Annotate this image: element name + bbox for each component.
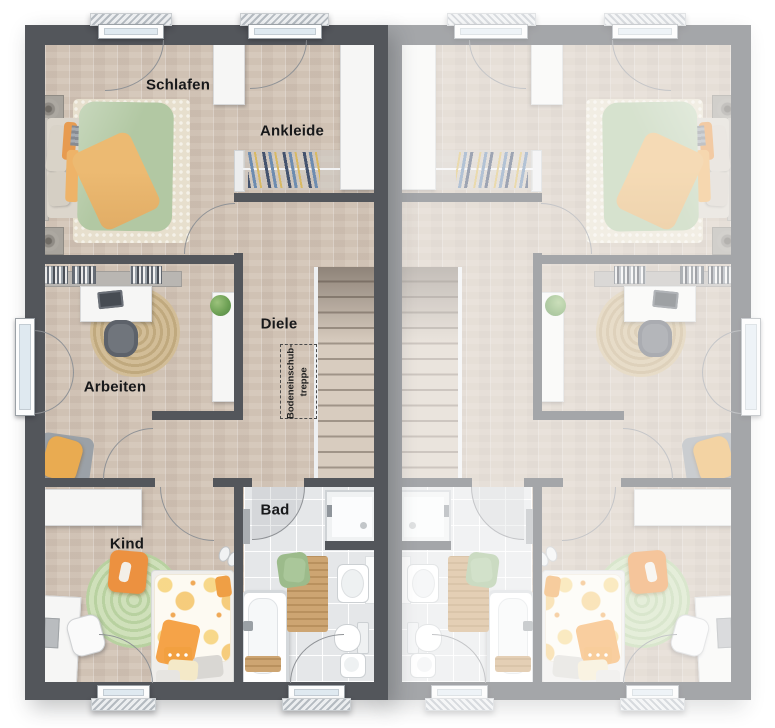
room-label-bad: Bad	[261, 502, 290, 519]
books	[680, 266, 704, 284]
window-glass	[437, 689, 482, 696]
shower-faucet	[444, 505, 449, 517]
wall-exterior-top	[388, 25, 751, 45]
window-glass	[745, 324, 757, 410]
wall-shower-stub	[402, 541, 451, 550]
unit-left	[388, 0, 775, 728]
window-glass	[618, 28, 672, 35]
unit-left: Schlafen Ankleide Diele Arbeiten Bad Kin…	[0, 0, 388, 728]
room-label-diele: Diele	[261, 316, 298, 333]
wall-arbeiten-bottom	[533, 411, 624, 420]
room-label-schlafen: Schlafen	[146, 77, 210, 94]
shower	[397, 490, 451, 544]
office-chair	[638, 320, 672, 357]
roof-window-exterior	[425, 698, 494, 711]
attic-hatch-annotation: Bodeneinschub- treppe	[280, 344, 317, 419]
potted-plant	[545, 295, 566, 316]
attic-hatch-line1: Bodeneinschub-	[286, 344, 299, 418]
bathtub-faucet	[523, 621, 533, 631]
hanging-clothes	[456, 152, 528, 188]
roof-window-ankleide	[454, 24, 528, 39]
room-label-ankleide: Ankleide	[260, 123, 324, 140]
bathtub-caddy	[495, 656, 531, 672]
bidet-bowl	[417, 657, 432, 672]
wall-corridor-stub	[524, 478, 563, 487]
floor-plan-canvas: Schlafen Ankleide Diele Arbeiten Bad Kin…	[0, 0, 775, 728]
staircase	[402, 267, 458, 485]
washbasin-bowl	[412, 569, 435, 598]
wardrobe	[531, 40, 563, 105]
french-window-arbeiten	[741, 318, 761, 416]
wall-spine-vertical	[533, 253, 542, 420]
window-glass	[632, 689, 673, 696]
shower-drain	[409, 522, 416, 529]
room-label-kind: Kind	[110, 536, 144, 553]
roof-window-exterior	[620, 698, 685, 711]
kids-pillow-orange	[544, 575, 562, 598]
wall-kind-top	[621, 478, 751, 487]
attic-hatch-text: Bodeneinschub- treppe	[286, 344, 312, 418]
wardrobe-ankleide	[400, 40, 436, 190]
wall-schlafen-arbeiten	[533, 255, 736, 264]
labels-layer: Schlafen Ankleide Diele Arbeiten Bad Kin…	[0, 0, 388, 728]
staircase-stringer	[458, 267, 462, 485]
window-glass	[460, 28, 522, 35]
books	[614, 266, 646, 284]
wall-kind-bad	[533, 487, 542, 682]
towel-green	[470, 557, 493, 583]
attic-hatch-line2: treppe	[299, 344, 312, 418]
laptop	[652, 290, 679, 310]
room-label-arbeiten: Arbeiten	[84, 379, 146, 396]
door-leaf	[526, 509, 533, 544]
wall-party	[388, 25, 402, 700]
wall-bad-top	[402, 478, 472, 487]
kids-wardrobe	[634, 489, 740, 526]
wall-ankleide-diele	[402, 193, 542, 202]
roof-window-schlafen	[612, 24, 678, 39]
